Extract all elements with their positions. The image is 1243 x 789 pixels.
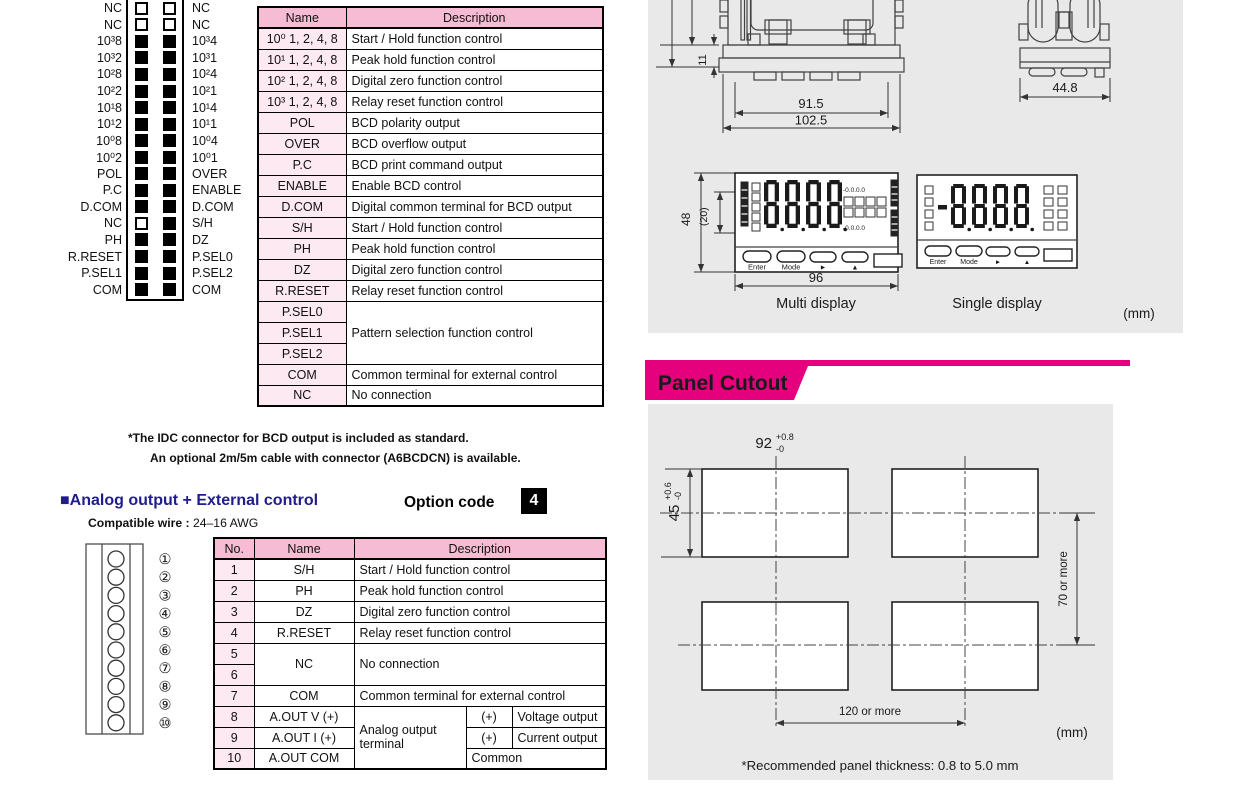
column-header: No. bbox=[214, 538, 254, 559]
pin-square-left bbox=[135, 267, 148, 280]
decimal-point bbox=[1030, 228, 1034, 232]
pin-label-right: D.COM bbox=[192, 200, 234, 214]
table-cell: 10 bbox=[214, 748, 254, 769]
table-cell: Start / Hold function control bbox=[346, 28, 603, 49]
status-squares-left bbox=[752, 183, 760, 231]
single-display-drawing: Enter Mode ► ▲ Single display bbox=[917, 175, 1077, 312]
pin-square-left bbox=[135, 18, 148, 31]
enter-button bbox=[743, 251, 771, 262]
table-row: 4R.RESETRelay reset function control bbox=[214, 622, 606, 643]
decimal-point bbox=[988, 228, 992, 232]
pin-row: NCNC bbox=[0, 17, 300, 34]
pin-row: 10³210³1 bbox=[0, 50, 300, 67]
pin-label-right: 10²1 bbox=[192, 84, 217, 98]
table-row: D.COMDigital common terminal for BCD out… bbox=[258, 196, 603, 217]
dim-cutout-height: 45 bbox=[666, 505, 683, 522]
terminal-number: ⑩ bbox=[159, 716, 172, 732]
pin-label-right: 10⁰1 bbox=[192, 150, 218, 165]
pin-label-right: OVER bbox=[192, 167, 227, 181]
pin-square-right bbox=[163, 68, 176, 81]
table-cell: Start / Hold function control bbox=[354, 559, 606, 580]
display-segment bbox=[993, 186, 997, 203]
table-row: 8A.OUT V (+)Analog output terminal(+)Vol… bbox=[214, 706, 606, 727]
display-segment bbox=[796, 205, 800, 224]
pin-label-right: 10³1 bbox=[192, 51, 217, 65]
dim-cutout-width-tol-plus: +0.8 bbox=[776, 432, 794, 442]
terminal-circle bbox=[108, 660, 124, 676]
table-cell: PH bbox=[254, 580, 354, 601]
column-header: Name bbox=[254, 538, 354, 559]
display-segment bbox=[951, 207, 955, 224]
display-segment bbox=[962, 207, 966, 224]
table-cell: P.C bbox=[258, 154, 346, 175]
pin-square-left bbox=[135, 233, 148, 246]
table-row: 7COMCommon terminal for external control bbox=[214, 685, 606, 706]
dim-panel-height: 48 bbox=[679, 212, 693, 226]
display-segment bbox=[938, 205, 947, 210]
pin-square-right bbox=[163, 250, 176, 263]
table-cell: P.SEL2 bbox=[258, 343, 346, 364]
table-row: P.CBCD print command output bbox=[258, 154, 603, 175]
table-cell: 9 bbox=[214, 727, 254, 748]
table-cell: Relay reset function control bbox=[346, 91, 603, 112]
pin-row: 10⁰810⁰4 bbox=[0, 132, 300, 149]
pin-label-left: R.RESET bbox=[0, 250, 122, 264]
pin-label-left: P.SEL1 bbox=[0, 266, 122, 280]
dimensions-drawing: 11 91.5 102.5 bbox=[648, 0, 1183, 333]
pin-row: P.CENABLE bbox=[0, 182, 300, 199]
terminal-number: ⑤ bbox=[159, 625, 172, 641]
unit-label: (mm) bbox=[1056, 725, 1087, 740]
table-row: ENABLEEnable BCD control bbox=[258, 175, 603, 196]
pin-square-left bbox=[135, 101, 148, 114]
table-cell: 2 bbox=[214, 580, 254, 601]
bcd-signal-table: NameDescription10⁰ 1, 2, 4, 8Start / Hol… bbox=[257, 6, 604, 407]
pin-square-right bbox=[163, 283, 176, 296]
table-cell: Relay reset function control bbox=[354, 622, 606, 643]
pin-square-left bbox=[135, 68, 148, 81]
terminal-pins bbox=[108, 551, 124, 731]
pin-square-left bbox=[135, 151, 148, 164]
display-segment bbox=[972, 207, 976, 224]
pin-square-left bbox=[135, 35, 148, 48]
right-arrow-button bbox=[986, 247, 1010, 256]
decimal-point bbox=[780, 228, 784, 232]
table-cell: P.SEL0 bbox=[258, 301, 346, 322]
pin-square-right bbox=[163, 151, 176, 164]
display-segment bbox=[983, 186, 987, 203]
pin-square-left bbox=[135, 118, 148, 131]
table-cell: (+) bbox=[466, 727, 512, 748]
panel-cutout-title: Panel Cutout bbox=[658, 372, 788, 395]
dim-cutout-height-tol-plus: +0.6 bbox=[663, 482, 673, 500]
pin-square-left bbox=[135, 2, 148, 15]
up-arrow-button bbox=[1015, 247, 1039, 256]
table-cell: Pattern selection function control bbox=[346, 301, 603, 364]
table-cell: NC bbox=[258, 385, 346, 406]
table-row: 10¹ 1, 2, 4, 8Peak hold function control bbox=[258, 49, 603, 70]
pin-row: 10²210²1 bbox=[0, 83, 300, 100]
table-row: COMCommon terminal for external control bbox=[258, 364, 603, 385]
table-cell: R.RESET bbox=[258, 280, 346, 301]
pin-label-left: COM bbox=[0, 283, 122, 297]
display-segment bbox=[1025, 186, 1029, 203]
pin-label-left: 10³8 bbox=[0, 34, 122, 48]
pin-square-left bbox=[135, 51, 148, 64]
dim-rear-width-outer: 102.5 bbox=[795, 113, 828, 128]
table-cell: Digital zero function control bbox=[346, 70, 603, 91]
display-segment bbox=[1004, 186, 1008, 203]
table-cell: Enable BCD control bbox=[346, 175, 603, 196]
table-cell: Start / Hold function control bbox=[346, 217, 603, 238]
pin-label-left: P.C bbox=[0, 183, 122, 197]
display-segment bbox=[817, 182, 821, 201]
panel-cutout-drawing: 92 +0.8 -0 45 +0.6 -0 70 or more bbox=[648, 404, 1113, 780]
multi-display-drawing: 48 (20) -0.0.0.0 bbox=[679, 173, 902, 312]
dim-display-height: (20) bbox=[698, 207, 710, 226]
table-cell: NC bbox=[254, 643, 354, 685]
table-cell: Relay reset function control bbox=[346, 280, 603, 301]
pin-square-right bbox=[163, 35, 176, 48]
table-cell: P.SEL1 bbox=[258, 322, 346, 343]
blank-button bbox=[1044, 249, 1072, 261]
display-segment bbox=[993, 207, 997, 224]
pin-square-right bbox=[163, 118, 176, 131]
table-cell: Analog output terminal bbox=[354, 706, 466, 769]
table-cell: 10³ 1, 2, 4, 8 bbox=[258, 91, 346, 112]
display-segment bbox=[785, 182, 789, 201]
pin-square-left bbox=[135, 200, 148, 213]
terminal-circle bbox=[108, 697, 124, 713]
section-title-analog: ■Analog output + External control bbox=[60, 492, 318, 510]
display-segment bbox=[838, 205, 842, 224]
terminal-number: ② bbox=[159, 570, 172, 586]
table-cell: 6 bbox=[214, 664, 254, 685]
pin-label-right: P.SEL0 bbox=[192, 250, 233, 264]
bargraph-indicator bbox=[741, 182, 748, 226]
table-cell: BCD polarity output bbox=[346, 112, 603, 133]
pin-label-left: 10³2 bbox=[0, 51, 122, 65]
panel-cutout-panel: 92 +0.8 -0 45 +0.6 -0 70 or more bbox=[648, 404, 1113, 780]
panel-cutout-banner: Panel Cutout bbox=[645, 356, 1135, 402]
terminal-circle bbox=[108, 642, 124, 658]
table-row: 2PHPeak hold function control bbox=[214, 580, 606, 601]
pin-square-left bbox=[135, 250, 148, 263]
decimal-point bbox=[967, 228, 971, 232]
pin-label-right: ENABLE bbox=[192, 183, 241, 197]
pin-row: NCNC bbox=[0, 0, 300, 17]
pin-label-left: 10⁰8 bbox=[0, 133, 122, 148]
table-cell: DZ bbox=[254, 601, 354, 622]
pin-row: 10⁰210⁰1 bbox=[0, 149, 300, 166]
rear-view-drawing: 11 91.5 102.5 bbox=[656, 0, 904, 133]
display-segment bbox=[827, 182, 831, 201]
table-row: PHPeak hold function control bbox=[258, 238, 603, 259]
table-cell: Common terminal for external control bbox=[346, 364, 603, 385]
header-row: No.NameDescription bbox=[214, 538, 606, 559]
terminal-number: ⑦ bbox=[159, 661, 172, 677]
pin-label-left: NC bbox=[0, 1, 122, 15]
column-header: Name bbox=[258, 7, 346, 28]
table-cell: COM bbox=[254, 685, 354, 706]
pin-square-right bbox=[163, 101, 176, 114]
table-cell: Digital zero function control bbox=[354, 601, 606, 622]
dim-cutout-height-tol-minus: -0 bbox=[673, 492, 683, 500]
terminal-circle bbox=[108, 715, 124, 731]
display-segment bbox=[785, 205, 789, 224]
table-cell: No connection bbox=[346, 385, 603, 406]
terminal-circle bbox=[108, 624, 124, 640]
dim-cutout-width: 92 bbox=[755, 435, 772, 452]
pin-row: 10²810²4 bbox=[0, 66, 300, 83]
table-cell: 7 bbox=[214, 685, 254, 706]
blank-button bbox=[874, 254, 902, 267]
pin-label-right: 10¹4 bbox=[192, 101, 217, 115]
table-cell: 10⁰ 1, 2, 4, 8 bbox=[258, 28, 346, 49]
table-cell: OVER bbox=[258, 133, 346, 154]
terminal-number: ⑥ bbox=[159, 643, 172, 659]
decimal-point bbox=[801, 228, 805, 232]
dim-cutout-width-tol-minus: -0 bbox=[776, 444, 784, 454]
display-segment bbox=[827, 205, 831, 224]
pin-row: 10³810³4 bbox=[0, 33, 300, 50]
bcd-connector-diagram: NCNCNCNC10³810³410³210³110²810²410²210²1… bbox=[0, 0, 300, 306]
pin-square-right bbox=[163, 217, 176, 230]
table-cell: S/H bbox=[258, 217, 346, 238]
column-header: Description bbox=[346, 7, 603, 28]
pin-label-right: NC bbox=[192, 1, 210, 15]
table-cell: (+) bbox=[466, 706, 512, 727]
table-cell: 4 bbox=[214, 622, 254, 643]
table-cell: Peak hold function control bbox=[346, 238, 603, 259]
terminal-circle bbox=[108, 551, 124, 567]
table-cell: Common terminal for external control bbox=[354, 685, 606, 706]
pin-row: D.COMD.COM bbox=[0, 199, 300, 216]
table-cell: S/H bbox=[254, 559, 354, 580]
pin-row: PHDZ bbox=[0, 232, 300, 249]
display-segment bbox=[764, 205, 768, 224]
pin-label-right: 10³4 bbox=[192, 34, 217, 48]
analog-terminal-table: No.NameDescription1S/HStart / Hold funct… bbox=[213, 537, 607, 770]
table-cell: Digital common terminal for BCD output bbox=[346, 196, 603, 217]
terminal-circle bbox=[108, 569, 124, 585]
pin-row: 10¹210¹1 bbox=[0, 116, 300, 133]
display-segment bbox=[1014, 186, 1018, 203]
terminal-number: ① bbox=[159, 552, 172, 568]
dim-side-width: 44.8 bbox=[1052, 80, 1077, 95]
up-arrow-icon: ▲ bbox=[1024, 259, 1030, 266]
table-cell: POL bbox=[258, 112, 346, 133]
display-segment bbox=[817, 205, 821, 224]
sub-display-top: -0.0.0.0 bbox=[843, 187, 865, 194]
decimal-point bbox=[1009, 228, 1013, 232]
display-segment bbox=[775, 205, 779, 224]
table-row: P.SEL0Pattern selection function control bbox=[258, 301, 603, 322]
dim-flange-thickness: 11 bbox=[697, 54, 709, 65]
terminal-number: ③ bbox=[159, 588, 172, 604]
pin-label-right: DZ bbox=[192, 233, 209, 247]
display-segment bbox=[838, 182, 842, 201]
up-arrow-button bbox=[842, 252, 868, 262]
display-segment bbox=[962, 186, 966, 203]
right-arrow-icon: ► bbox=[995, 259, 1001, 266]
table-cell: 5 bbox=[214, 643, 254, 664]
display-segment bbox=[1014, 207, 1018, 224]
pin-square-left bbox=[135, 283, 148, 296]
table-cell: Peak hold function control bbox=[354, 580, 606, 601]
pin-label-left: 10⁰2 bbox=[0, 150, 122, 165]
pin-label-left: D.COM bbox=[0, 200, 122, 214]
table-cell: Voltage output bbox=[512, 706, 606, 727]
terminal-circle bbox=[108, 606, 124, 622]
display-segment bbox=[983, 207, 987, 224]
table-row: NCNo connection bbox=[258, 385, 603, 406]
display-segment bbox=[806, 182, 810, 201]
dim-panel-width: 96 bbox=[809, 270, 823, 285]
panel-thickness-note: *Recommended panel thickness: 0.8 to 5.0… bbox=[741, 758, 1018, 773]
table-row: 10⁰ 1, 2, 4, 8Start / Hold function cont… bbox=[258, 28, 603, 49]
pin-label-right: 10⁰4 bbox=[192, 133, 218, 148]
compatible-wire-value: 24–16 AWG bbox=[193, 516, 258, 530]
pin-square-right bbox=[163, 233, 176, 246]
pin-label-left: NC bbox=[0, 216, 122, 230]
pin-label-left: 10²8 bbox=[0, 67, 122, 81]
display-segment bbox=[972, 186, 976, 203]
pin-square-right bbox=[163, 85, 176, 98]
pin-square-left bbox=[135, 217, 148, 230]
pin-label-left: 10²2 bbox=[0, 84, 122, 98]
option-code-badge: 4 bbox=[521, 488, 547, 514]
compatible-wire-label: Compatible wire : bbox=[88, 516, 190, 530]
pin-row: R.RESETP.SEL0 bbox=[0, 248, 300, 265]
pin-square-right bbox=[163, 51, 176, 64]
single-display-label: Single display bbox=[952, 296, 1042, 312]
terminal-block-diagram: ①②③④⑤⑥⑦⑧⑨⑩ bbox=[80, 542, 210, 742]
table-cell: D.COM bbox=[258, 196, 346, 217]
datasheet-page: NCNCNCNC10³810³410³210³110²810²410²210²1… bbox=[0, 0, 1243, 789]
pin-square-right bbox=[163, 267, 176, 280]
table-row: POLBCD polarity output bbox=[258, 112, 603, 133]
compatible-wire: Compatible wire : 24–16 AWG bbox=[88, 516, 258, 530]
pin-square-right bbox=[163, 134, 176, 147]
enter-button-label: Enter bbox=[930, 259, 947, 266]
table-cell: BCD overflow output bbox=[346, 133, 603, 154]
dim-rear-width-inner: 91.5 bbox=[798, 96, 823, 111]
pin-row: NCS/H bbox=[0, 215, 300, 232]
pin-label-left: POL bbox=[0, 167, 122, 181]
table-cell: Digital zero function control bbox=[346, 259, 603, 280]
table-row: 3DZDigital zero function control bbox=[214, 601, 606, 622]
up-arrow-icon: ▲ bbox=[852, 265, 859, 272]
cutout-rect bbox=[702, 602, 848, 690]
table-cell: Peak hold function control bbox=[346, 49, 603, 70]
table-cell: 10² 1, 2, 4, 8 bbox=[258, 70, 346, 91]
display-segment bbox=[1025, 207, 1029, 224]
table-row: 5NCNo connection bbox=[214, 643, 606, 664]
pin-label-right: P.SEL2 bbox=[192, 266, 233, 280]
table-cell: 1 bbox=[214, 559, 254, 580]
dim-vertical-spacing: 70 or more bbox=[1058, 551, 1070, 607]
enter-button-label: Enter bbox=[748, 263, 766, 272]
display-segment bbox=[1004, 207, 1008, 224]
table-cell: DZ bbox=[258, 259, 346, 280]
mode-button bbox=[777, 251, 805, 262]
table-cell: COM bbox=[258, 364, 346, 385]
pin-square-left bbox=[135, 167, 148, 180]
side-view-drawing: 44.8 bbox=[1019, 0, 1110, 102]
table-cell: ENABLE bbox=[258, 175, 346, 196]
terminal-number: ④ bbox=[159, 607, 172, 623]
table-cell: 10¹ 1, 2, 4, 8 bbox=[258, 49, 346, 70]
pin-row: P.SEL1P.SEL2 bbox=[0, 265, 300, 282]
sub-display-bottom: -0.0.0.0 bbox=[843, 225, 865, 232]
table-cell: A.OUT I (+) bbox=[254, 727, 354, 748]
header-row: NameDescription bbox=[258, 7, 603, 28]
column-header: Description bbox=[354, 538, 606, 559]
table-cell: BCD print command output bbox=[346, 154, 603, 175]
terminal-numbers: ①②③④⑤⑥⑦⑧⑨⑩ bbox=[159, 552, 172, 732]
terminal-number: ⑨ bbox=[159, 698, 172, 714]
pin-square-left bbox=[135, 85, 148, 98]
table-cell: No connection bbox=[354, 643, 606, 685]
terminal-circle bbox=[108, 587, 124, 603]
mode-button-label: Mode bbox=[960, 259, 978, 266]
pin-square-right bbox=[163, 167, 176, 180]
table-row: DZDigital zero function control bbox=[258, 259, 603, 280]
pin-label-right: NC bbox=[192, 18, 210, 32]
pin-label-left: PH bbox=[0, 233, 122, 247]
option-code-label: Option code bbox=[404, 494, 494, 512]
pin-label-right: COM bbox=[192, 283, 221, 297]
pin-row: POLOVER bbox=[0, 166, 300, 183]
display-segment bbox=[951, 186, 955, 203]
enter-button bbox=[925, 246, 951, 256]
table-cell: PH bbox=[258, 238, 346, 259]
pin-label-right: S/H bbox=[192, 216, 213, 230]
display-segment bbox=[764, 182, 768, 201]
table-cell: Common bbox=[466, 748, 606, 769]
table-row: R.RESETRelay reset function control bbox=[258, 280, 603, 301]
pin-label-right: 10²4 bbox=[192, 67, 217, 81]
mode-button bbox=[956, 246, 982, 256]
pin-label-left: 10¹8 bbox=[0, 101, 122, 115]
table-row: S/HStart / Hold function control bbox=[258, 217, 603, 238]
pin-label-left: NC bbox=[0, 18, 122, 32]
pin-square-left bbox=[135, 184, 148, 197]
pin-square-left bbox=[135, 134, 148, 147]
right-arrow-button bbox=[810, 252, 836, 262]
mode-button-label: Mode bbox=[782, 263, 801, 272]
table-row: OVERBCD overflow output bbox=[258, 133, 603, 154]
bargraph-indicator-right bbox=[891, 180, 898, 206]
pin-label-right: 10¹1 bbox=[192, 117, 217, 131]
dimensions-panel: 11 91.5 102.5 bbox=[648, 0, 1183, 333]
bargraph-indicator-right2 bbox=[891, 210, 898, 236]
table-row: 10³ 1, 2, 4, 8Relay reset function contr… bbox=[258, 91, 603, 112]
pin-square-right bbox=[163, 200, 176, 213]
decimal-point bbox=[822, 228, 826, 232]
table-cell: A.OUT V (+) bbox=[254, 706, 354, 727]
display-segment bbox=[775, 182, 779, 201]
unit-label: (mm) bbox=[1123, 306, 1154, 321]
table-cell: 8 bbox=[214, 706, 254, 727]
display-segment bbox=[796, 182, 800, 201]
pin-square-right bbox=[163, 18, 176, 31]
pin-square-right bbox=[163, 2, 176, 15]
note-idc-connector: *The IDC connector for BCD output is inc… bbox=[128, 431, 469, 445]
table-row: 1S/HStart / Hold function control bbox=[214, 559, 606, 580]
terminal-number: ⑧ bbox=[159, 679, 172, 695]
